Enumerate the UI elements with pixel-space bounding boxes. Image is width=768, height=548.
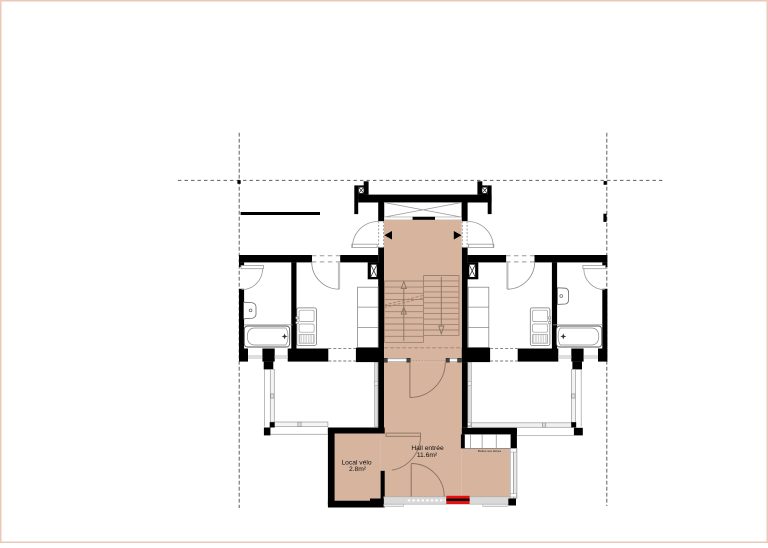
svg-text:11.6m²: 11.6m² xyxy=(417,452,438,459)
svg-text:Boîtes aux lettres: Boîtes aux lettres xyxy=(478,449,502,453)
svg-text:2.8m²: 2.8m² xyxy=(349,466,367,473)
